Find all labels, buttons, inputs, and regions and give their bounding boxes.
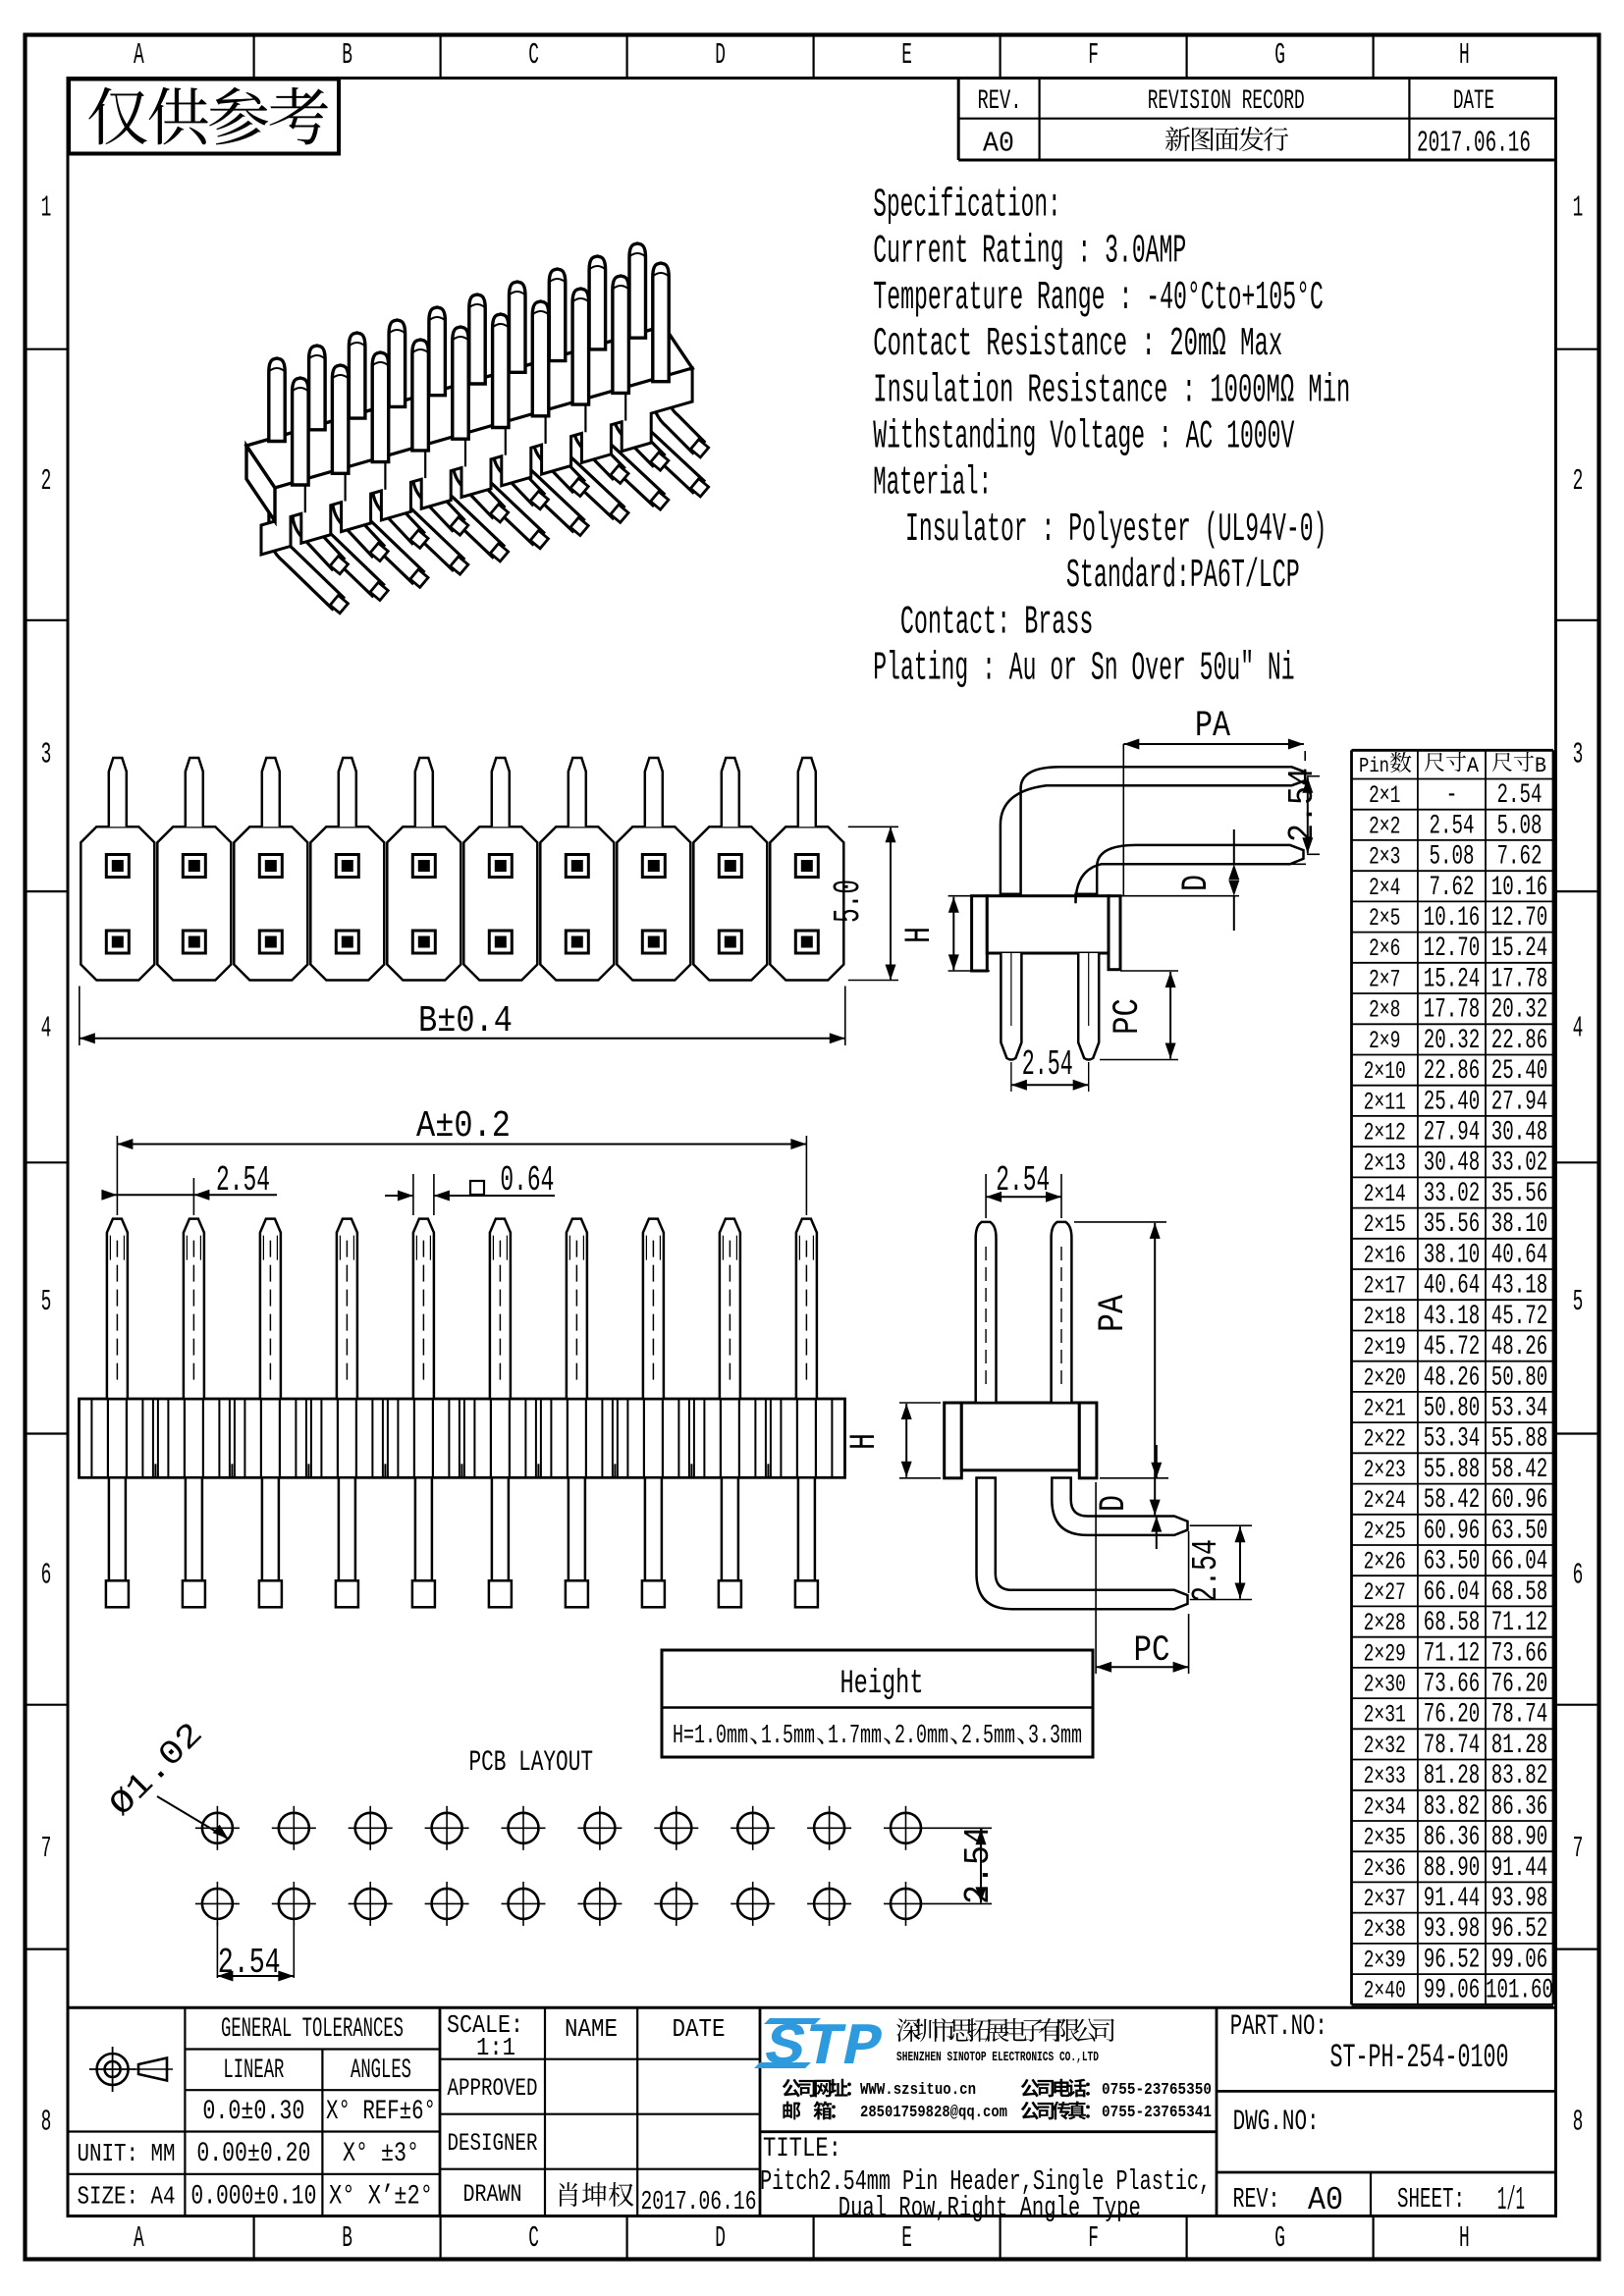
svg-text:2.54: 2.54: [1282, 768, 1323, 842]
svg-text:99.06: 99.06: [1491, 1946, 1548, 1976]
svg-text:2×30: 2×30: [1364, 1671, 1406, 1699]
svg-text:H: H: [844, 1433, 886, 1450]
svg-text:2×11: 2×11: [1364, 1088, 1406, 1116]
svg-text:SIZE: A4: SIZE: A4: [78, 2182, 176, 2212]
svg-text:DWG.NO:: DWG.NO:: [1233, 2106, 1320, 2139]
svg-text:2×26: 2×26: [1364, 1548, 1406, 1576]
svg-text:5: 5: [1573, 1285, 1584, 1319]
svg-text:8: 8: [41, 2106, 52, 2140]
svg-text:2×27: 2×27: [1364, 1578, 1406, 1607]
svg-text:2×8: 2×8: [1369, 996, 1400, 1025]
svg-text:83.82: 83.82: [1424, 1791, 1481, 1822]
svg-text:33.02: 33.02: [1424, 1179, 1481, 1209]
svg-text:25.40: 25.40: [1424, 1087, 1481, 1117]
svg-text:76.20: 76.20: [1491, 1670, 1548, 1700]
svg-text:96.52: 96.52: [1424, 1946, 1481, 1976]
svg-text:A: A: [134, 38, 144, 73]
svg-text:86.36: 86.36: [1491, 1791, 1548, 1822]
svg-text:7.62: 7.62: [1497, 842, 1543, 873]
svg-text:LINEAR: LINEAR: [223, 2056, 284, 2086]
svg-text:H: H: [1459, 2221, 1470, 2256]
svg-text:2×18: 2×18: [1364, 1303, 1406, 1331]
svg-text:91.44: 91.44: [1491, 1853, 1548, 1884]
svg-text:REV:: REV:: [1233, 2183, 1280, 2216]
svg-text:48.26: 48.26: [1491, 1332, 1548, 1362]
svg-text:2.54: 2.54: [1430, 811, 1475, 841]
svg-text:Specification:: Specification:: [873, 184, 1060, 229]
svg-text:66.04: 66.04: [1424, 1577, 1481, 1608]
svg-text:2×39: 2×39: [1364, 1947, 1406, 1975]
svg-text:2×35: 2×35: [1364, 1824, 1406, 1852]
svg-text:2×5: 2×5: [1369, 904, 1400, 933]
svg-text:66.04: 66.04: [1491, 1547, 1548, 1577]
svg-text:2.54: 2.54: [1186, 1539, 1226, 1602]
svg-text:48.26: 48.26: [1424, 1362, 1481, 1393]
svg-text:Withstanding Voltage : AC 1000: Withstanding Voltage : AC 1000V: [873, 415, 1294, 460]
svg-text:Insulation Resistance : 1000MΩ: Insulation Resistance : 1000MΩ Min: [873, 368, 1350, 413]
svg-text:2.54: 2.54: [1022, 1044, 1073, 1085]
svg-text:2×14: 2×14: [1364, 1180, 1406, 1208]
svg-text:30.48: 30.48: [1491, 1118, 1548, 1148]
svg-text:5.08: 5.08: [1430, 842, 1475, 873]
svg-text:63.50: 63.50: [1491, 1516, 1548, 1546]
svg-text:3: 3: [1573, 738, 1584, 773]
svg-text:10.16: 10.16: [1491, 873, 1548, 903]
svg-text:88.90: 88.90: [1491, 1823, 1548, 1853]
svg-text:Material:: Material:: [873, 461, 992, 507]
svg-text:0.0±0.30: 0.0±0.30: [202, 2097, 304, 2127]
svg-text:D: D: [1176, 875, 1218, 891]
svg-text:Contact: Brass: Contact: Brass: [900, 600, 1094, 645]
svg-text:0.000±0.10: 0.000±0.10: [190, 2182, 316, 2213]
svg-text:PC: PC: [1108, 998, 1149, 1035]
svg-text:2×4: 2×4: [1369, 874, 1400, 902]
svg-text:91.44: 91.44: [1424, 1884, 1481, 1914]
svg-text:PC: PC: [1134, 1630, 1170, 1672]
svg-text:7: 7: [41, 1832, 52, 1866]
svg-text:2.54: 2.54: [218, 1943, 281, 1983]
svg-text:1: 1: [1573, 191, 1584, 226]
svg-text:27.94: 27.94: [1491, 1087, 1548, 1117]
svg-text:4: 4: [1573, 1011, 1584, 1045]
svg-text:12.70: 12.70: [1424, 934, 1481, 964]
svg-text:53.34: 53.34: [1424, 1424, 1481, 1455]
svg-text:Standard:PA6T/LCP: Standard:PA6T/LCP: [1066, 554, 1300, 599]
svg-text:2.54: 2.54: [216, 1160, 270, 1201]
svg-text:76.20: 76.20: [1424, 1700, 1481, 1731]
svg-text:STP: STP: [766, 2015, 882, 2082]
svg-text:2×9: 2×9: [1369, 1027, 1400, 1055]
svg-text:2017.06.16: 2017.06.16: [1417, 127, 1531, 161]
svg-text:2×25: 2×25: [1364, 1517, 1406, 1545]
svg-text:2×38: 2×38: [1364, 1915, 1406, 1944]
svg-text:50.80: 50.80: [1424, 1394, 1481, 1424]
svg-text:2×17: 2×17: [1364, 1272, 1406, 1301]
svg-text:30.48: 30.48: [1424, 1148, 1481, 1179]
svg-text:PA: PA: [1093, 1294, 1134, 1332]
svg-text:81.28: 81.28: [1424, 1761, 1481, 1791]
svg-text:A0: A0: [983, 128, 1014, 160]
svg-text:2×29: 2×29: [1364, 1639, 1406, 1668]
svg-text:F: F: [1088, 38, 1099, 73]
svg-text:38.10: 38.10: [1491, 1209, 1548, 1240]
svg-text:X° REF±6°: X° REF±6°: [326, 2097, 436, 2127]
svg-text:2×1: 2×1: [1369, 781, 1400, 810]
svg-text:G: G: [1274, 2221, 1285, 2256]
svg-text:TITLE:: TITLE:: [763, 2134, 841, 2164]
svg-text:SHENZHEN SINOTOP ELECTRONICS C: SHENZHEN SINOTOP ELECTRONICS CO.,LTD: [896, 2050, 1099, 2065]
svg-text:45.72: 45.72: [1491, 1302, 1548, 1332]
svg-text:Height: Height: [840, 1666, 924, 1703]
svg-text:45.72: 45.72: [1424, 1332, 1481, 1362]
svg-text:B: B: [342, 38, 352, 73]
svg-text:2×21: 2×21: [1364, 1395, 1406, 1423]
svg-text:2×40: 2×40: [1364, 1977, 1406, 2005]
svg-text:78.74: 78.74: [1491, 1700, 1548, 1731]
svg-text:99.06: 99.06: [1424, 1976, 1481, 2006]
svg-text:2×32: 2×32: [1364, 1732, 1406, 1760]
svg-text:83.82: 83.82: [1491, 1761, 1548, 1791]
svg-text:60.96: 60.96: [1424, 1516, 1481, 1546]
svg-text:DRAWN: DRAWN: [463, 2180, 522, 2209]
svg-text:93.98: 93.98: [1424, 1914, 1481, 1945]
svg-text:X° ±3°: X° ±3°: [343, 2139, 419, 2169]
svg-text:2.54: 2.54: [1497, 780, 1543, 811]
svg-text:3: 3: [41, 738, 52, 773]
svg-text:B: B: [1535, 754, 1546, 778]
svg-text:ST-PH-254-0100: ST-PH-254-0100: [1330, 2040, 1509, 2077]
svg-text:5.0: 5.0: [828, 880, 870, 923]
svg-text:2×23: 2×23: [1364, 1456, 1406, 1484]
svg-text:22.86: 22.86: [1491, 1026, 1548, 1056]
svg-text:2: 2: [1573, 464, 1584, 499]
svg-text:APPROVED: APPROVED: [448, 2074, 538, 2103]
svg-text:B±0.4: B±0.4: [418, 1000, 513, 1042]
svg-text:Dual Row,Right Angle Type: Dual Row,Right Angle Type: [839, 2192, 1141, 2224]
svg-text:A: A: [134, 2221, 144, 2256]
svg-text:38.10: 38.10: [1424, 1240, 1481, 1270]
svg-text:73.66: 73.66: [1424, 1670, 1481, 1700]
svg-text:58.42: 58.42: [1424, 1485, 1481, 1516]
svg-text:53.34: 53.34: [1491, 1394, 1548, 1424]
svg-text:5.08: 5.08: [1497, 811, 1543, 841]
svg-text:1: 1: [41, 191, 52, 226]
svg-text:43.18: 43.18: [1424, 1302, 1481, 1332]
svg-text:1:1: 1:1: [476, 2033, 515, 2062]
svg-text:2×22: 2×22: [1364, 1425, 1406, 1454]
svg-text:0.64: 0.64: [500, 1160, 554, 1201]
svg-text:2×2: 2×2: [1369, 812, 1400, 840]
svg-text:PART.NO:: PART.NO:: [1230, 2010, 1327, 2044]
svg-text:Insulator : Polyester (UL94V-0: Insulator : Polyester (UL94V-0): [905, 507, 1326, 553]
svg-text:43.18: 43.18: [1491, 1271, 1548, 1302]
svg-text:73.66: 73.66: [1491, 1638, 1548, 1669]
svg-text:Contact Resistance : 20mΩ Max: Contact Resistance : 20mΩ Max: [873, 322, 1282, 367]
svg-text:1/1: 1/1: [1497, 2182, 1525, 2218]
svg-text:NAME: NAME: [565, 2014, 618, 2044]
svg-text:H=1.0mm: H=1.0mm: [673, 1722, 748, 1751]
svg-text:93.98: 93.98: [1491, 1884, 1548, 1914]
svg-text:0.00±0.20: 0.00±0.20: [196, 2139, 310, 2169]
svg-text:58.42: 58.42: [1491, 1455, 1548, 1485]
svg-text:4: 4: [41, 1011, 52, 1045]
svg-text:88.90: 88.90: [1424, 1853, 1481, 1884]
svg-text:F: F: [1088, 2221, 1099, 2256]
svg-text:2×3: 2×3: [1369, 843, 1400, 872]
svg-text:E: E: [901, 38, 912, 73]
svg-text:3.3mm: 3.3mm: [1028, 1722, 1082, 1751]
svg-text:B: B: [342, 2221, 352, 2256]
svg-text:REVISION RECORD: REVISION RECORD: [1148, 86, 1305, 117]
svg-text:2×15: 2×15: [1364, 1210, 1406, 1239]
svg-text:A: A: [1467, 754, 1480, 778]
svg-text:2×6: 2×6: [1369, 934, 1400, 963]
svg-text:C: C: [528, 38, 539, 73]
svg-text:78.74: 78.74: [1424, 1731, 1481, 1761]
svg-text:8: 8: [1573, 2106, 1584, 2140]
svg-text:2×7: 2×7: [1369, 965, 1400, 993]
svg-text:Temperature Range : -40°Cto+10: Temperature Range : -40°Cto+105°C: [873, 276, 1324, 321]
svg-text:6: 6: [41, 1559, 52, 1593]
svg-text:7.62: 7.62: [1430, 873, 1475, 903]
svg-text:55.88: 55.88: [1491, 1424, 1548, 1455]
svg-text:15.24: 15.24: [1424, 964, 1481, 994]
svg-text:UNIT: MM: UNIT: MM: [78, 2139, 176, 2168]
svg-text:E: E: [901, 2221, 912, 2256]
svg-text:0755-23765341: 0755-23765341: [1102, 2104, 1212, 2122]
svg-text:X° X’±2°: X° X’±2°: [329, 2182, 433, 2213]
svg-text:20.32: 20.32: [1491, 995, 1548, 1026]
svg-text:1.7mm: 1.7mm: [828, 1722, 882, 1751]
svg-text:6: 6: [1573, 1559, 1584, 1593]
svg-text:71.12: 71.12: [1424, 1638, 1481, 1669]
svg-text:PCB LAYOUT: PCB LAYOUT: [469, 1746, 594, 1780]
svg-text:2017.06.16: 2017.06.16: [641, 2188, 757, 2217]
svg-text:40.64: 40.64: [1424, 1271, 1481, 1302]
svg-text:1.5mm: 1.5mm: [761, 1722, 815, 1751]
svg-text:2×24: 2×24: [1364, 1486, 1406, 1515]
svg-text:A0: A0: [1308, 2182, 1343, 2218]
svg-text:40.64: 40.64: [1491, 1240, 1548, 1270]
svg-text:2×20: 2×20: [1364, 1363, 1406, 1392]
svg-text:D: D: [715, 2221, 726, 2256]
svg-text:71.12: 71.12: [1491, 1608, 1548, 1638]
svg-text:2×37: 2×37: [1364, 1885, 1406, 1913]
svg-text:2.54: 2.54: [996, 1160, 1050, 1201]
svg-text:2.5mm: 2.5mm: [961, 1722, 1015, 1751]
svg-text:Current Rating : 3.0AMP: Current Rating : 3.0AMP: [873, 230, 1186, 275]
svg-text:2×12: 2×12: [1364, 1119, 1406, 1148]
svg-text:86.36: 86.36: [1424, 1823, 1481, 1853]
svg-text:55.88: 55.88: [1424, 1455, 1481, 1485]
svg-text:PA: PA: [1195, 706, 1231, 747]
svg-text:20.32: 20.32: [1424, 1026, 1481, 1056]
svg-text:Plating : Au or Sn Over 50u″ N: Plating : Au or Sn Over 50u″ Ni: [873, 647, 1294, 692]
svg-text:C: C: [528, 2221, 539, 2256]
svg-text:2×16: 2×16: [1364, 1241, 1406, 1269]
svg-text:2×33: 2×33: [1364, 1762, 1406, 1790]
svg-text:DATE: DATE: [1453, 86, 1494, 117]
svg-text:60.96: 60.96: [1491, 1485, 1548, 1516]
svg-text:2×13: 2×13: [1364, 1149, 1406, 1178]
svg-text:7: 7: [1573, 1832, 1584, 1866]
svg-text:28501759828@qq.com: 28501759828@qq.com: [860, 2104, 1007, 2122]
svg-text:15.24: 15.24: [1491, 934, 1548, 964]
svg-text:G: G: [1274, 38, 1285, 73]
svg-text:GENERAL TOLERANCES: GENERAL TOLERANCES: [221, 2014, 404, 2045]
svg-text:Pin: Pin: [1359, 756, 1389, 778]
svg-text:17.78: 17.78: [1491, 964, 1548, 994]
svg-text:96.52: 96.52: [1491, 1914, 1548, 1945]
svg-text:H: H: [899, 927, 941, 943]
svg-text:35.56: 35.56: [1491, 1179, 1548, 1209]
svg-text:SHEET:: SHEET:: [1397, 2183, 1465, 2216]
svg-text:DESIGNER: DESIGNER: [448, 2129, 538, 2158]
svg-text:A±0.2: A±0.2: [416, 1105, 511, 1148]
svg-text:2×34: 2×34: [1364, 1792, 1406, 1821]
svg-text:22.86: 22.86: [1424, 1056, 1481, 1087]
svg-text:2×10: 2×10: [1364, 1057, 1406, 1086]
svg-text:12.70: 12.70: [1491, 903, 1548, 934]
svg-text:25.40: 25.40: [1491, 1056, 1548, 1087]
svg-text:2×19: 2×19: [1364, 1333, 1406, 1362]
svg-text:2×36: 2×36: [1364, 1854, 1406, 1883]
svg-text:50.80: 50.80: [1491, 1362, 1548, 1393]
svg-text:17.78: 17.78: [1424, 995, 1481, 1026]
svg-text:33.02: 33.02: [1491, 1148, 1548, 1179]
svg-text:2: 2: [41, 464, 52, 499]
svg-text:DATE: DATE: [673, 2014, 726, 2044]
svg-text:D: D: [715, 38, 726, 73]
svg-text:2×31: 2×31: [1364, 1701, 1406, 1730]
svg-text:101.60: 101.60: [1486, 1976, 1553, 2006]
svg-text:5: 5: [41, 1285, 52, 1319]
svg-text:81.28: 81.28: [1491, 1731, 1548, 1761]
svg-text:REV.: REV.: [978, 86, 1022, 117]
svg-text:2×28: 2×28: [1364, 1609, 1406, 1637]
svg-text:H: H: [1459, 38, 1470, 73]
svg-text:2.0mm: 2.0mm: [894, 1722, 948, 1751]
svg-text:2.54: 2.54: [958, 1826, 999, 1904]
svg-text:-: -: [1446, 780, 1458, 811]
svg-text:ANGLES: ANGLES: [351, 2056, 411, 2086]
svg-text:35.56: 35.56: [1424, 1209, 1481, 1240]
svg-text:68.58: 68.58: [1491, 1577, 1548, 1608]
svg-text:WWW.szsituo.cn: WWW.szsituo.cn: [860, 2081, 976, 2100]
svg-text:27.94: 27.94: [1424, 1118, 1481, 1148]
svg-text:0755-23765350: 0755-23765350: [1102, 2081, 1212, 2100]
svg-text:10.16: 10.16: [1424, 903, 1481, 934]
svg-text:68.58: 68.58: [1424, 1608, 1481, 1638]
svg-text:D: D: [1094, 1495, 1135, 1512]
svg-text:63.50: 63.50: [1424, 1547, 1481, 1577]
